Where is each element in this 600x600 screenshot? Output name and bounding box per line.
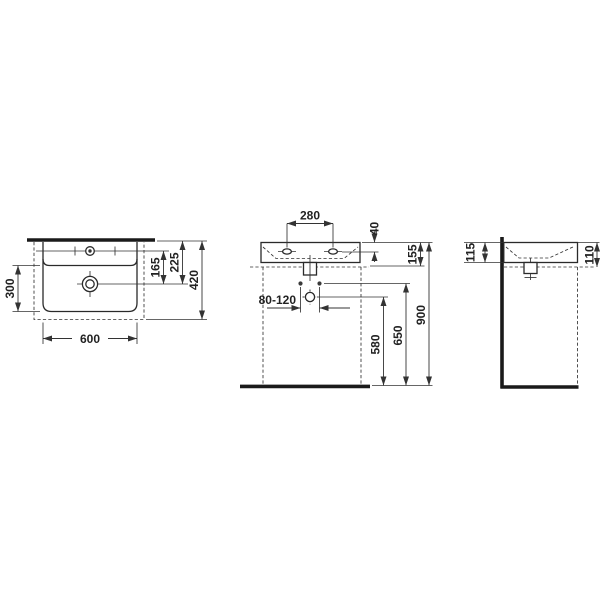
- dim-label-fixing-height: 650: [391, 325, 405, 345]
- dim-label-back-to-drain: 225: [168, 252, 182, 272]
- dim-label-height-front: 110: [583, 245, 597, 265]
- tap-hole-center: [88, 249, 91, 252]
- dim-label-tap-to-drain: 165: [149, 257, 163, 277]
- dim-label-installation-height: 900: [414, 305, 428, 325]
- dim-label-fixing-spacing: 80-120: [259, 293, 297, 307]
- dim-label-bowl-depth: 300: [3, 278, 17, 298]
- dim-label-total-depth: 420: [187, 270, 201, 290]
- fixing-hole: [298, 281, 302, 285]
- tap-hole: [329, 249, 338, 254]
- top-view: 300 165 225 420 600: [3, 240, 207, 346]
- bowl-edge-line: [43, 259, 137, 266]
- water-connection-symbol: [305, 292, 314, 301]
- drain-hole-inner: [86, 280, 94, 288]
- technical-drawing-page: 300 165 225 420 600: [0, 0, 600, 600]
- basin-side-outline: [504, 243, 578, 263]
- dim-label-rim-to-tap: 40: [368, 222, 382, 236]
- basin-front-outline: [261, 243, 360, 263]
- washbasin-dimension-drawing: 300 165 225 420 600: [0, 0, 600, 600]
- dim-label-tap-spacing: 280: [300, 209, 320, 223]
- dim-label-height-wall: 115: [464, 242, 478, 262]
- dim-label-width: 600: [80, 332, 100, 346]
- front-view: 280 40 155 80-120 580 650 900: [240, 209, 433, 387]
- dim-label-drain-height: 580: [369, 334, 383, 354]
- dim-label-basin-height: 155: [406, 244, 420, 264]
- tap-hole: [283, 249, 292, 254]
- side-view: 115 110: [464, 237, 600, 389]
- drain-outlet: [524, 263, 537, 274]
- fixing-hole: [317, 281, 321, 285]
